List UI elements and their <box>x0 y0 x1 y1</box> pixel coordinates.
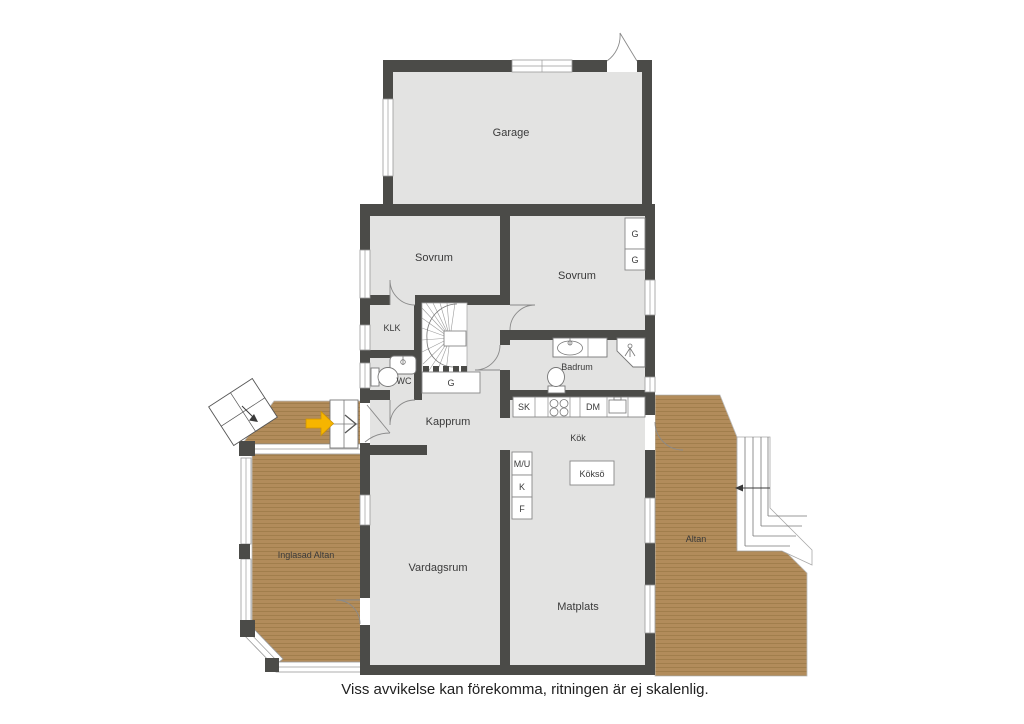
wall <box>360 525 370 598</box>
floorplan-drawing: G G G <box>0 0 1024 724</box>
room-label-inglasad-altan: Inglasad Altan <box>278 550 335 560</box>
wall <box>415 390 422 400</box>
disclaimer-caption: Viss avvikelse kan förekomma, ritningen … <box>341 681 708 698</box>
wall <box>645 392 655 415</box>
wall <box>500 450 510 665</box>
badrum-toilet-tank <box>548 386 565 393</box>
wall <box>383 176 393 206</box>
wall <box>572 60 607 72</box>
dishwasher-dm-label: DM <box>586 402 600 412</box>
wall <box>360 204 655 216</box>
wall <box>645 216 655 280</box>
closet-under-stairs-label: G <box>447 378 454 388</box>
room-label-kapprum: Kapprum <box>426 416 471 428</box>
wall <box>370 390 390 400</box>
porch-post-bottomleft <box>240 620 255 637</box>
garage-door-swing <box>607 33 637 61</box>
room-label-sovrum-right: Sovrum <box>558 270 596 282</box>
wall <box>360 216 370 250</box>
porch-post-midleft <box>239 544 250 559</box>
wall <box>360 388 370 403</box>
room-label-matplats: Matplats <box>557 601 599 613</box>
cabinet-f-label: F <box>519 504 525 514</box>
room-label-badrum: Badrum <box>561 362 593 372</box>
wall <box>360 350 370 363</box>
room-label-klk: KLK <box>383 323 400 333</box>
wall <box>645 315 655 377</box>
closet-g1-label: G <box>631 229 638 239</box>
wall <box>645 450 655 498</box>
wall <box>500 370 510 418</box>
room-label-vardagsrum: Vardagsrum <box>408 562 467 574</box>
wall <box>360 665 655 675</box>
wall <box>500 216 510 305</box>
cabinet-sk-label: SK <box>518 402 530 412</box>
kitchen-island-label: Köksö <box>579 469 604 479</box>
wall <box>500 330 510 345</box>
closets: G G <box>625 218 645 270</box>
closet-g2-label: G <box>631 255 638 265</box>
room-label-garage: Garage <box>493 127 530 139</box>
wall <box>637 60 652 72</box>
staircase-landing <box>444 331 466 346</box>
cabinet-k-label: K <box>519 482 525 492</box>
altan-stairs <box>735 437 812 565</box>
porch-post-topleft <box>239 441 255 456</box>
wall <box>645 543 655 585</box>
badrum-vanity <box>553 338 607 357</box>
wall <box>383 72 393 99</box>
room-label-altan: Altan <box>686 534 707 544</box>
room-label-wc: WC <box>397 376 412 386</box>
wall <box>642 72 652 206</box>
garage-floor <box>393 72 642 206</box>
room-label-kok: Kök <box>570 433 586 443</box>
room-label-sovrum-left: Sovrum <box>415 252 453 264</box>
wc-toilet-bowl <box>378 368 398 387</box>
floorplan-page: G G G <box>0 0 1024 724</box>
cabinet-mu-label: M/U <box>514 459 531 469</box>
wall <box>360 445 427 455</box>
kok-altan-door-gap <box>645 415 655 450</box>
porch-door-gap <box>360 598 370 625</box>
entrance-door-gap <box>360 403 370 443</box>
porch-post-bottom <box>265 658 279 672</box>
wall <box>383 60 512 72</box>
